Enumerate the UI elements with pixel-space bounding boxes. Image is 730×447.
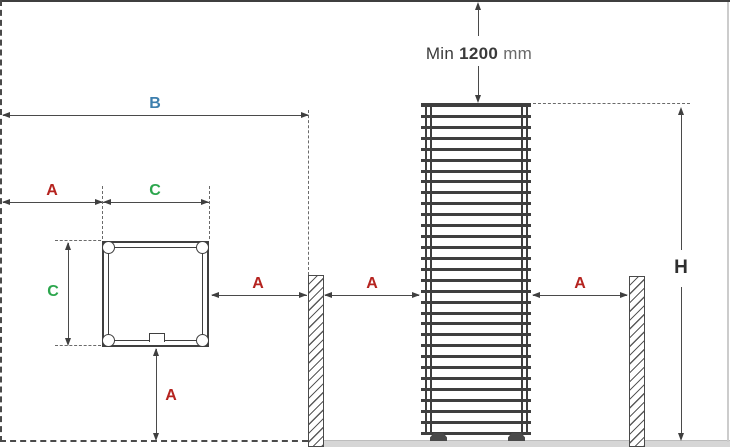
dimension-a-heater-wall-line bbox=[533, 295, 627, 296]
heater-tube bbox=[421, 224, 531, 227]
heater-bars bbox=[421, 103, 531, 435]
floor-band bbox=[308, 440, 730, 447]
dimension-a-wall-heater-label: A bbox=[357, 276, 387, 292]
arrowhead bbox=[324, 292, 332, 298]
arrowhead bbox=[201, 199, 209, 205]
heater-tube bbox=[421, 410, 531, 413]
heater-tube bbox=[421, 191, 531, 194]
arrowhead bbox=[153, 433, 159, 441]
dimension-h-line-lower bbox=[681, 287, 682, 434]
connection-notch bbox=[149, 333, 165, 342]
clearance-upper-arrow-line bbox=[478, 9, 479, 36]
heater-top-view-inner-frame bbox=[108, 247, 203, 341]
dimension-c-side-line bbox=[68, 243, 69, 339]
wall-section-right bbox=[629, 276, 645, 447]
extension-dashed-line bbox=[102, 186, 103, 239]
arrowhead bbox=[412, 292, 420, 298]
dimension-a-top-label: A bbox=[37, 183, 67, 199]
arrowhead bbox=[211, 292, 219, 298]
corner-post bbox=[196, 241, 209, 254]
extension-dashed-line bbox=[55, 240, 101, 241]
min-clearance-value: 1200 bbox=[459, 44, 498, 63]
heater-tube bbox=[421, 148, 531, 151]
ceiling-line bbox=[2, 0, 730, 2]
dimension-h-line-upper bbox=[681, 114, 682, 250]
heater-tube bbox=[421, 170, 531, 173]
heater-tube bbox=[421, 333, 531, 336]
heater-tube bbox=[421, 322, 531, 325]
dimension-a-wall-heater-line bbox=[325, 295, 419, 296]
dimension-h-label: H bbox=[666, 258, 696, 277]
arrowhead bbox=[2, 112, 10, 118]
left-wall-dashed-line bbox=[0, 0, 2, 442]
heater-tube bbox=[421, 257, 531, 260]
heater-tube bbox=[421, 312, 531, 315]
arrowhead bbox=[2, 199, 10, 205]
heater-tube bbox=[421, 279, 531, 282]
heater-tube bbox=[421, 126, 531, 129]
arrowhead bbox=[299, 292, 307, 298]
heater-tube bbox=[421, 246, 531, 249]
heater-tube bbox=[421, 366, 531, 369]
heater-tube bbox=[421, 301, 531, 304]
arrowhead bbox=[153, 348, 159, 356]
wall-section-left bbox=[308, 275, 324, 447]
heater-tube bbox=[421, 355, 531, 358]
min-clearance-note: Min 1200 mm bbox=[394, 44, 564, 64]
dimension-b-label: B bbox=[132, 96, 178, 112]
heater-tube bbox=[421, 202, 531, 205]
corner-post bbox=[102, 241, 115, 254]
min-clearance-unit: mm bbox=[503, 44, 532, 63]
arrowhead bbox=[65, 242, 71, 250]
arrowhead bbox=[65, 338, 71, 346]
heater-tube bbox=[421, 377, 531, 380]
extension-dashed-line bbox=[55, 345, 101, 346]
right-frame-line bbox=[727, 2, 729, 442]
arrowhead bbox=[532, 292, 540, 298]
dimension-a-heater-wall-label: A bbox=[565, 276, 595, 292]
dimension-b-line bbox=[3, 115, 309, 116]
corner-post bbox=[102, 334, 115, 347]
arrowhead bbox=[475, 95, 481, 103]
heater-tube bbox=[421, 115, 531, 118]
heater-tube bbox=[421, 235, 531, 238]
min-clearance-prefix: Min bbox=[426, 44, 454, 63]
b-extension-dashed-line bbox=[308, 110, 309, 275]
heater-tube bbox=[421, 213, 531, 216]
dimension-c-top-label: C bbox=[140, 183, 170, 199]
extension-dashed-line bbox=[209, 186, 210, 239]
heater-tube bbox=[421, 388, 531, 391]
heater-tube bbox=[421, 421, 531, 424]
heater-tube bbox=[421, 344, 531, 347]
dimension-a-square-wall-label: A bbox=[243, 276, 273, 292]
clearance-diagram: B A C C A A A Min 1200 bbox=[0, 0, 730, 447]
clearance-lower-arrow-line bbox=[478, 66, 479, 96]
arrowhead bbox=[620, 292, 628, 298]
heater-tube bbox=[421, 399, 531, 402]
dimension-a-square-wall-line bbox=[212, 295, 307, 296]
arrowhead bbox=[678, 433, 684, 441]
heater-top-dashed-line bbox=[533, 103, 690, 104]
heater-tube bbox=[421, 290, 531, 293]
heater-tube bbox=[421, 137, 531, 140]
heater-tube bbox=[421, 268, 531, 271]
heater-tube bbox=[421, 159, 531, 162]
heater-tube bbox=[421, 103, 531, 107]
heater-tube bbox=[421, 180, 531, 183]
corner-post bbox=[196, 334, 209, 347]
dimension-c-side-label: C bbox=[38, 284, 68, 300]
dimension-a-bottom-label: A bbox=[156, 388, 186, 404]
arrowhead bbox=[103, 199, 111, 205]
